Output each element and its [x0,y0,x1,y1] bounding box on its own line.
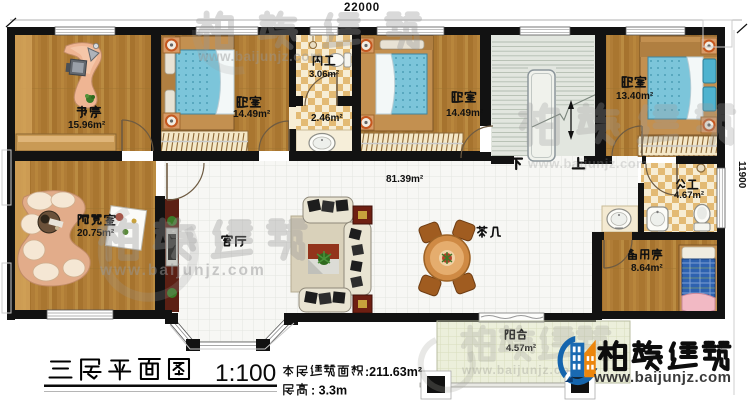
svg-text:13.40m²: 13.40m² [616,91,654,102]
svg-text:14.49m²: 14.49m² [233,109,271,120]
svg-text:www.baijunjz.com: www.baijunjz.com [527,156,648,171]
svg-text:1:100: 1:100 [215,360,276,387]
svg-text:11900: 11900 [736,161,747,189]
svg-text:14.49m²: 14.49m² [446,108,484,119]
svg-text:3.06m²: 3.06m² [309,69,339,80]
svg-text:: 3.3m: : 3.3m [311,384,347,398]
svg-text:4.67m²: 4.67m² [674,190,704,201]
svg-text:2.46m²: 2.46m² [311,113,343,124]
svg-text:81.39m²: 81.39m² [386,174,424,185]
svg-text::211.63m²: :211.63m² [365,365,422,379]
svg-text:15.96m²: 15.96m² [68,120,106,131]
svg-text:www.baijunjz.com: www.baijunjz.com [593,369,731,386]
svg-text:8.64m²: 8.64m² [631,263,663,274]
